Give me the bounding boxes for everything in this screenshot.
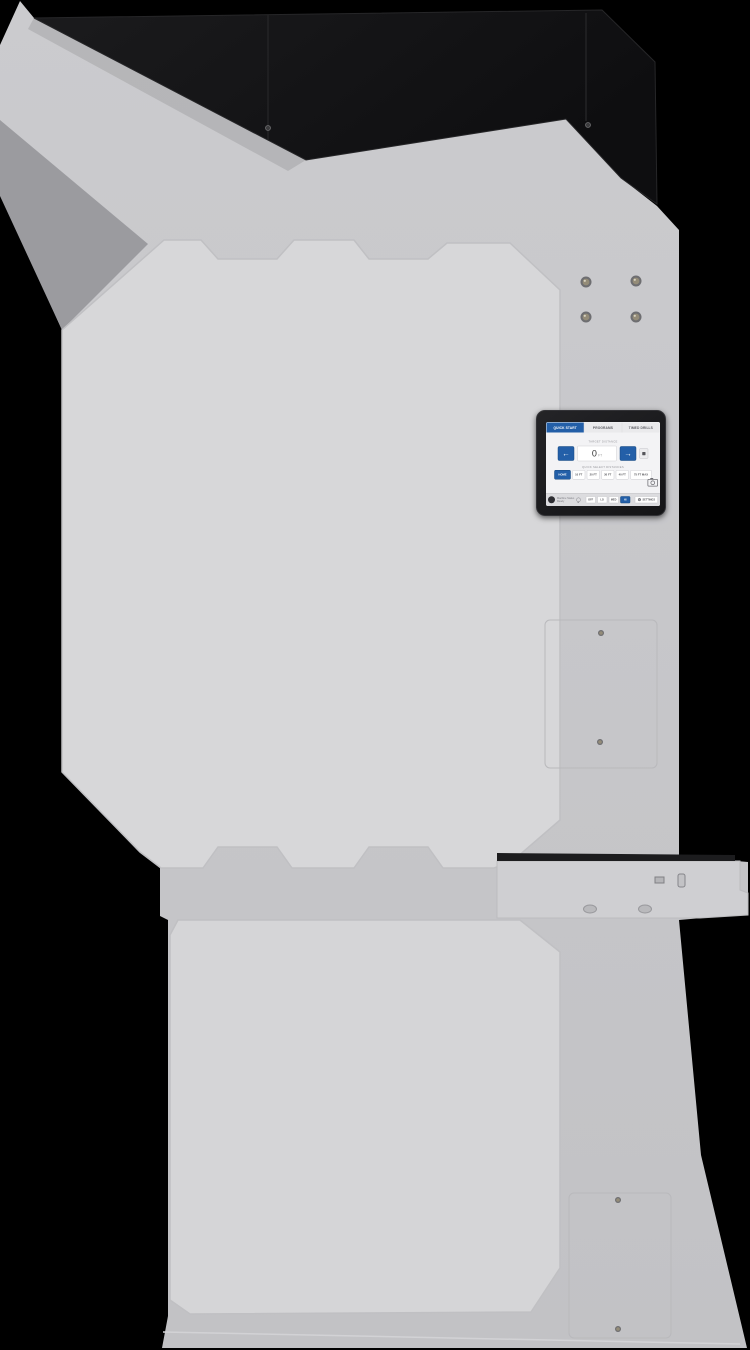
settings-button[interactable]: ⚙ SETTINGS [635,496,658,503]
light-button-group: OFF LO MED HI [586,496,631,503]
touchscreen: QUICK START PROGRAMS TIMED DRILLS TARGET… [546,422,660,506]
upper-door-panel [62,240,560,868]
lower-door-panel [170,920,560,1314]
side-arm-body [497,861,748,918]
bolt-icon [597,739,603,745]
quick-select-row: HOME 10 FT 20 FT 30 FT 40 FT 75 FT MAX [546,470,660,480]
quick-select-10ft-button[interactable]: 10 FT [572,470,585,480]
quick-select-40ft-button[interactable]: 40 FT [616,470,629,480]
decrease-distance-button[interactable]: ← [558,446,575,461]
bolt-icon [581,312,592,323]
left-arrow-icon: ← [562,449,570,457]
machine-status-text: Machine Status Ready [557,497,574,503]
distance-control-row: ← 0 FT → [546,446,660,462]
bolt-icon [615,1197,621,1203]
light-off-button[interactable]: OFF [586,496,596,503]
tab-bar: QUICK START PROGRAMS TIMED DRILLS [547,423,660,433]
bolt-icon [615,1326,621,1332]
quick-select-30ft-button[interactable]: 30 FT [601,470,614,480]
bolt-icon [598,630,604,636]
tab-quick-start[interactable]: QUICK START [547,423,584,433]
quick-select-20ft-button[interactable]: 20 FT [587,470,600,480]
tablet-bezel: QUICK START PROGRAMS TIMED DRILLS TARGET… [536,410,666,516]
status-bar: Machine Status Ready OFF LO MED HI ⚙ SET… [546,493,660,506]
light-low-button[interactable]: LO [597,496,607,503]
target-distance-label: TARGET DISTANCE [546,440,660,443]
settings-label: SETTINGS [642,498,655,501]
arm-pin-icon [678,874,685,887]
distance-value-box: 0 FT [577,446,617,462]
quick-select-label: QUICK SELECT DISTANCES [546,466,660,469]
arm-slot-hole [639,905,652,913]
status-line-2: Ready [557,500,574,503]
bolt-icon [631,276,642,287]
quick-select-home-button[interactable]: HOME [554,470,571,480]
hood-screw-icon [586,123,591,128]
side-arm [497,853,748,918]
stop-button[interactable] [639,448,648,459]
camera-button[interactable] [648,479,659,487]
arm-slot-hole [584,905,597,913]
tab-timed-drills[interactable]: TIMED DRILLS [622,423,659,433]
camera-icon [651,481,656,486]
light-high-button[interactable]: HI [620,496,630,503]
brand-logo [548,496,555,503]
light-med-button[interactable]: MED [609,496,619,503]
increase-distance-button[interactable]: → [620,446,637,461]
distance-unit: FT [598,453,602,457]
distance-value: 0 [592,448,597,459]
bolt-icon [631,312,642,323]
arm-clip-icon [655,877,664,883]
stop-icon [642,452,645,455]
hood-screw-icon [266,126,271,131]
gear-icon: ⚙ [638,498,641,502]
light-bulb-icon [576,498,581,503]
machine-render [0,0,750,1350]
right-arrow-icon: → [624,449,632,457]
bolt-icon [581,277,592,288]
tab-programs[interactable]: PROGRAMS [584,423,621,433]
